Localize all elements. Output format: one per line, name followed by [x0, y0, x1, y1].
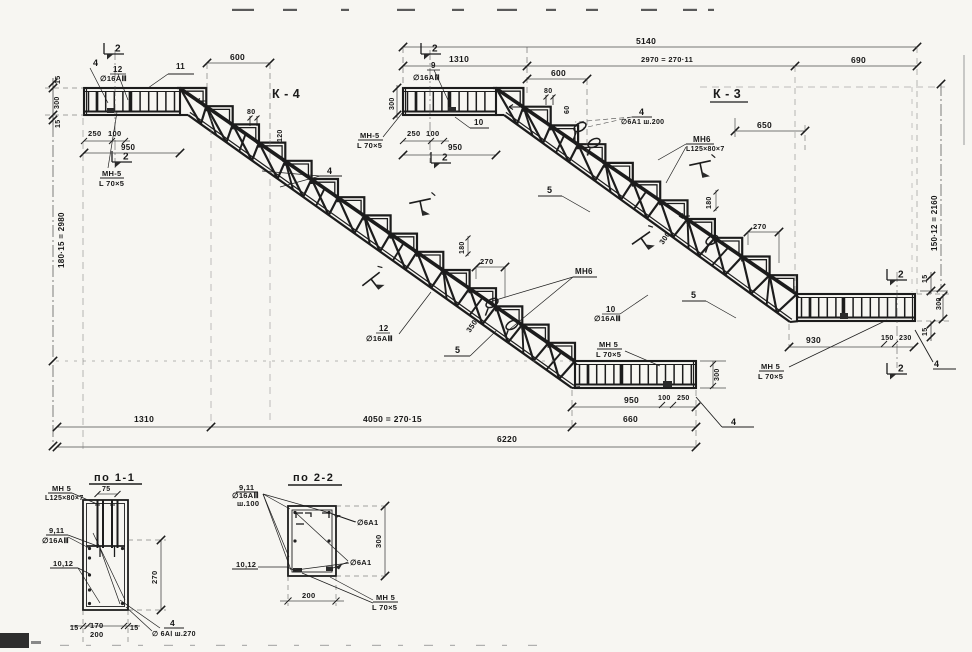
svg-text:4: 4	[934, 359, 939, 369]
svg-text:690: 690	[851, 55, 866, 65]
svg-text:L 70×5: L 70×5	[758, 372, 783, 381]
svg-text:∅16АⅢ: ∅16АⅢ	[366, 334, 393, 343]
svg-text:4050 = 270·15: 4050 = 270·15	[363, 414, 422, 424]
svg-text:600: 600	[230, 52, 245, 62]
svg-text:2: 2	[115, 44, 121, 55]
svg-text:МН 5: МН 5	[376, 593, 395, 602]
svg-text:100: 100	[426, 129, 439, 138]
svg-text:12: 12	[113, 65, 123, 74]
svg-text:L 70×5: L 70×5	[357, 141, 382, 150]
svg-text:100: 100	[658, 395, 671, 402]
svg-text:600: 600	[551, 68, 566, 78]
svg-text:2: 2	[432, 44, 438, 55]
svg-text:270: 270	[753, 222, 766, 231]
svg-text:МН-5: МН-5	[102, 169, 122, 178]
svg-text:2: 2	[898, 270, 904, 281]
svg-text:МН6: МН6	[575, 267, 593, 276]
svg-text:10,12: 10,12	[236, 560, 256, 569]
svg-text:11: 11	[176, 62, 185, 71]
svg-text:10: 10	[606, 305, 616, 314]
svg-text:∅ 6АⅠ ш.270: ∅ 6АⅠ ш.270	[152, 630, 196, 638]
svg-text:650: 650	[757, 120, 772, 130]
svg-text:К - 4: К - 4	[272, 87, 300, 101]
svg-text:1310: 1310	[134, 414, 154, 424]
svg-text:930: 930	[806, 335, 821, 345]
svg-text:250: 250	[407, 129, 420, 138]
svg-text:300: 300	[389, 97, 396, 110]
svg-text:180·15 = 2980: 180·15 = 2980	[57, 212, 66, 268]
svg-text:∅16АⅢ: ∅16АⅢ	[42, 536, 69, 545]
svg-text:270: 270	[480, 257, 493, 266]
svg-text:L125×80×7: L125×80×7	[686, 146, 725, 153]
svg-text:L125×80×7: L125×80×7	[45, 495, 84, 502]
svg-text:2: 2	[898, 364, 904, 375]
svg-text:60: 60	[564, 106, 571, 114]
svg-text:5: 5	[455, 345, 460, 355]
svg-text:4: 4	[170, 618, 175, 628]
svg-text:180: 180	[459, 241, 466, 254]
svg-text:250: 250	[88, 129, 101, 138]
svg-text:5140: 5140	[636, 36, 656, 46]
svg-text:170: 170	[90, 621, 103, 630]
svg-text:L 70×5: L 70×5	[372, 603, 397, 612]
svg-text:∅16АⅢ: ∅16АⅢ	[594, 314, 621, 323]
svg-text:300: 300	[374, 535, 383, 548]
svg-text:9,11: 9,11	[49, 526, 64, 535]
svg-text:по 2-2: по 2-2	[293, 472, 334, 484]
svg-text:150·12 = 2160: 150·12 = 2160	[930, 195, 939, 251]
svg-text:ш.100: ш.100	[237, 499, 259, 508]
svg-text:10: 10	[474, 118, 484, 127]
svg-text:200: 200	[302, 591, 315, 600]
svg-text:180: 180	[706, 196, 713, 209]
svg-text:300: 300	[54, 96, 61, 109]
svg-text:по 1-1: по 1-1	[94, 472, 135, 484]
svg-text:2: 2	[442, 153, 448, 164]
svg-text:МН 5: МН 5	[52, 484, 71, 493]
svg-text:950: 950	[121, 143, 135, 152]
svg-text:∅6А1: ∅6А1	[350, 558, 372, 567]
svg-text:80: 80	[544, 88, 552, 95]
svg-text:100: 100	[108, 129, 121, 138]
svg-text:15: 15	[70, 625, 78, 632]
svg-text:15: 15	[922, 275, 929, 283]
svg-text:15: 15	[922, 328, 929, 336]
svg-text:300: 300	[936, 297, 943, 310]
svg-text:L 70×5: L 70×5	[99, 179, 124, 188]
svg-text:200: 200	[90, 630, 103, 639]
svg-text:80: 80	[247, 109, 255, 116]
svg-text:4: 4	[93, 58, 98, 68]
svg-text:2970 = 270·11: 2970 = 270·11	[641, 55, 693, 64]
svg-text:4: 4	[327, 166, 332, 176]
svg-text:МН 5: МН 5	[761, 362, 780, 371]
svg-text:5: 5	[547, 185, 552, 195]
svg-text:300: 300	[714, 368, 721, 381]
svg-text:15: 15	[55, 120, 62, 128]
svg-text:5: 5	[691, 290, 696, 300]
svg-text:75: 75	[102, 486, 110, 493]
svg-text:∅6А1 ш.200: ∅6А1 ш.200	[621, 118, 664, 126]
svg-text:∅16АⅢ: ∅16АⅢ	[100, 74, 127, 83]
svg-text:250: 250	[677, 395, 690, 402]
svg-text:950: 950	[448, 143, 462, 152]
svg-text:К - 3: К - 3	[713, 87, 741, 101]
svg-text:270: 270	[150, 571, 159, 584]
svg-text:4: 4	[731, 417, 736, 427]
svg-text:6220: 6220	[497, 434, 517, 444]
svg-text:230: 230	[899, 335, 912, 342]
svg-text:10,12: 10,12	[53, 559, 73, 568]
svg-text:L 70×5: L 70×5	[596, 350, 621, 359]
svg-text:15: 15	[55, 76, 62, 84]
svg-text:1310: 1310	[449, 54, 469, 64]
svg-text:МН6: МН6	[693, 135, 711, 144]
svg-text:950: 950	[624, 395, 639, 405]
svg-text:4: 4	[639, 107, 644, 117]
svg-text:660: 660	[623, 414, 638, 424]
svg-text:15: 15	[130, 625, 138, 632]
svg-text:МН 5: МН 5	[599, 340, 618, 349]
svg-text:∅6А1: ∅6А1	[357, 518, 379, 527]
svg-text:МН-5: МН-5	[360, 131, 380, 140]
svg-text:150: 150	[881, 335, 894, 342]
svg-text:9: 9	[431, 61, 436, 70]
svg-text:12: 12	[379, 324, 389, 333]
svg-text:120: 120	[277, 129, 284, 142]
